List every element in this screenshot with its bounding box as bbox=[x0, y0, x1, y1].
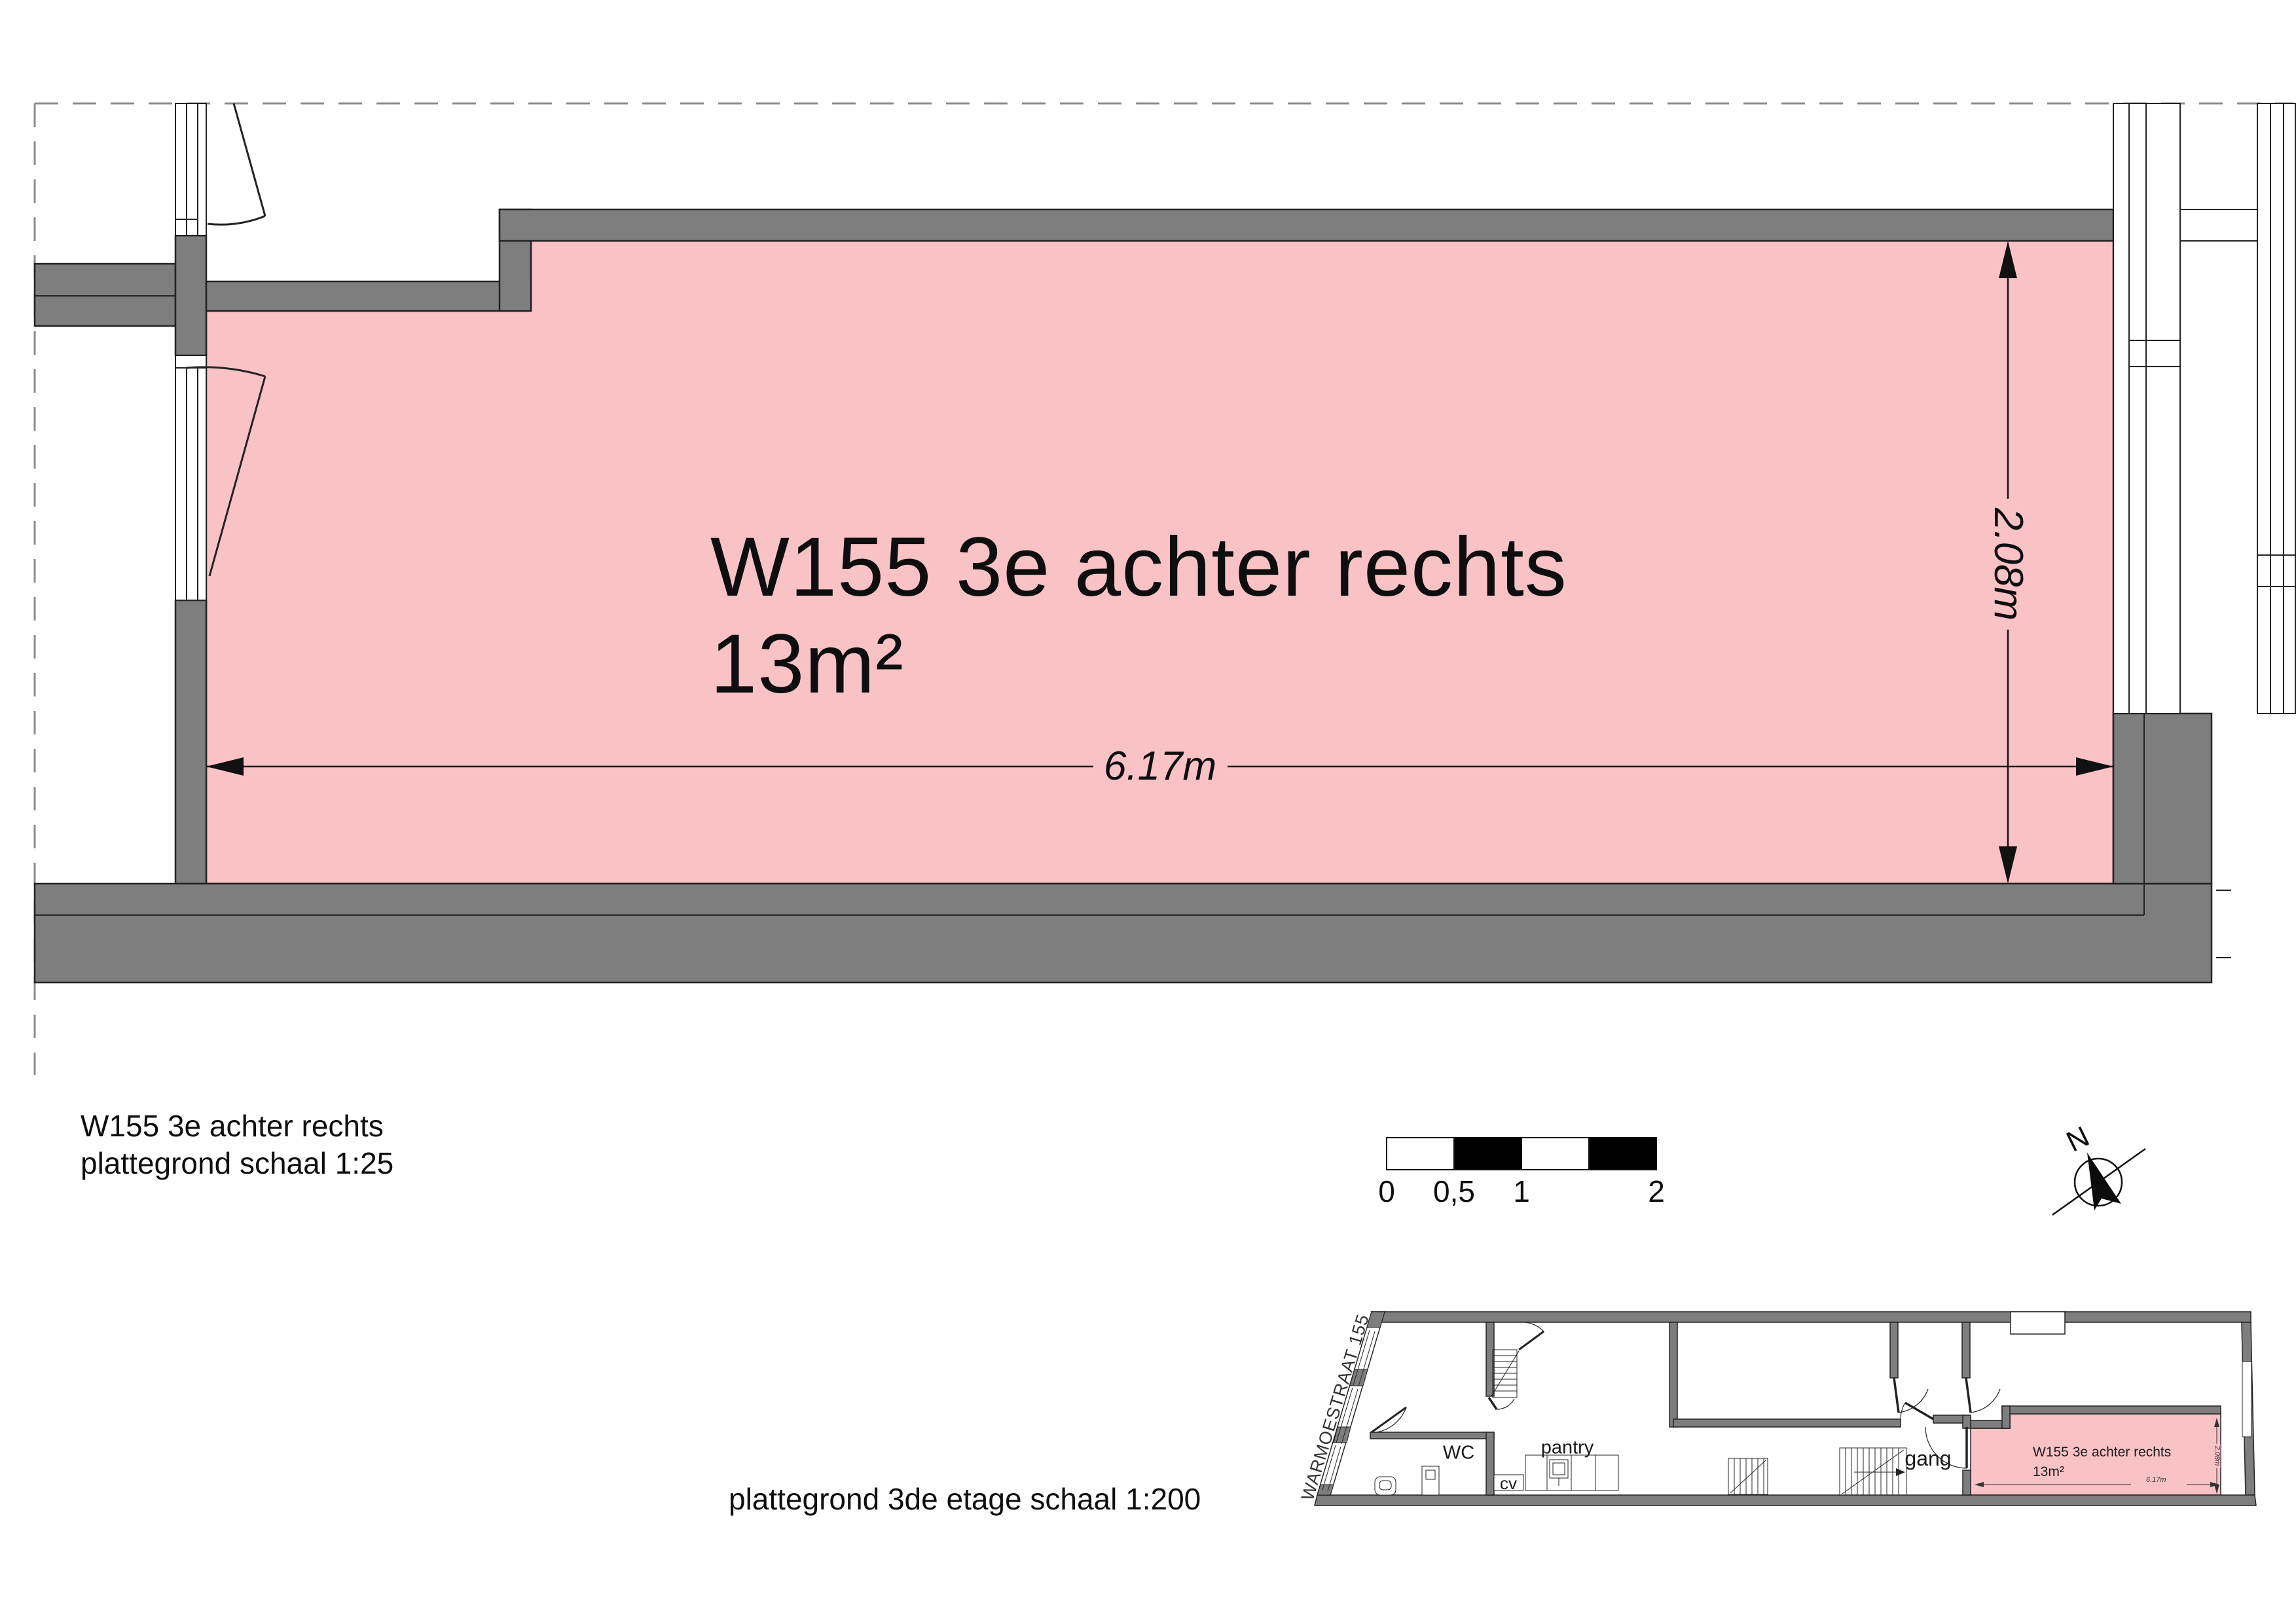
room-label-wc: WC bbox=[1443, 1444, 1474, 1463]
highlight-top-step bbox=[2002, 1406, 2010, 1428]
right-wall-continuation-lines bbox=[2180, 209, 2257, 241]
overview-highlight-size: 13m² bbox=[2033, 1465, 2064, 1479]
north-needle bbox=[2087, 1153, 2121, 1210]
width-dimension-label: 6.17m bbox=[1095, 746, 1226, 787]
overview-fixtures bbox=[1375, 1455, 1618, 1495]
room-divider-a bbox=[1669, 1322, 1677, 1427]
room-label-gang: gang bbox=[1904, 1448, 1951, 1469]
overview-plan bbox=[1315, 1312, 2256, 1506]
scale-bar bbox=[1387, 1138, 1656, 1170]
overview-caption: plattegrond 3de etage schaal 1:200 bbox=[729, 1481, 1201, 1518]
room-divider-b bbox=[1890, 1322, 1898, 1378]
ov-right-window bbox=[2242, 1362, 2251, 1437]
highlight-left-wall-top bbox=[1963, 1415, 1971, 1428]
stair-gang bbox=[1840, 1448, 1906, 1495]
pantry-counter bbox=[1525, 1455, 1618, 1490]
left-wall-lower bbox=[175, 600, 206, 884]
ov-bottom-wall bbox=[1315, 1495, 2256, 1506]
stair-left bbox=[1491, 1350, 1519, 1398]
right-window-frame-outer bbox=[2257, 103, 2295, 713]
left-wall-upper bbox=[175, 236, 206, 355]
room-label-cv: cv bbox=[1500, 1475, 1517, 1492]
overview-highlight-label: W155 3e achter rechts bbox=[2033, 1445, 2171, 1459]
flue-door bbox=[1489, 1398, 1514, 1409]
height-dimension-label: 2.08m bbox=[1988, 499, 2028, 630]
wc-top-wall bbox=[1370, 1432, 1494, 1439]
scale-label-05: 0,5 bbox=[1433, 1176, 1475, 1206]
wc-toilet bbox=[1375, 1477, 1396, 1495]
room-label-pantry: pantry bbox=[1541, 1439, 1594, 1458]
reference-ticks bbox=[2216, 890, 2231, 958]
right-window-frame-inner bbox=[2113, 103, 2180, 713]
room-area-label: W155 3e achter rechts bbox=[710, 519, 1567, 616]
overview-dim-height: 2.08m bbox=[2214, 1444, 2221, 1468]
top-wall-left-band bbox=[206, 281, 531, 311]
highlight-top-wall bbox=[2002, 1406, 2221, 1414]
left-window-frame bbox=[175, 103, 206, 236]
room-c-door bbox=[1966, 1378, 2000, 1413]
plan-caption-title: W155 3e achter rechts bbox=[81, 1108, 384, 1145]
right-wall-lower bbox=[2113, 713, 2212, 884]
overview-dim-width: 6.17m bbox=[2144, 1477, 2168, 1484]
door-leaf bbox=[234, 103, 265, 216]
ov-top-notch bbox=[2011, 1312, 2065, 1334]
corridor-wall-left bbox=[1673, 1419, 1901, 1427]
wc-door bbox=[1372, 1407, 1406, 1432]
door-arc bbox=[208, 216, 265, 225]
floorplan-sheet: W155 3e achter rechts 13m² 6.17m 2.08m W… bbox=[0, 0, 2296, 1624]
plan-caption-scale: plattegrond schaal 1:25 bbox=[81, 1145, 393, 1182]
highlight-left-wall-bottom bbox=[1963, 1470, 1971, 1495]
room-size-label: 13m² bbox=[710, 616, 904, 713]
stair-top-door bbox=[1519, 1322, 1544, 1350]
bottom-wall bbox=[35, 884, 2212, 983]
scale-bar-black-1 bbox=[1454, 1138, 1522, 1170]
scale-bar-black-2 bbox=[1589, 1138, 1656, 1170]
party-wall-stub bbox=[35, 264, 175, 326]
left-door-frame bbox=[175, 355, 206, 600]
top-wall-main bbox=[500, 209, 2113, 241]
scale-label-1: 1 bbox=[1513, 1176, 1530, 1206]
scale-label-0: 0 bbox=[1378, 1176, 1395, 1206]
neighbor-door-swing bbox=[208, 103, 265, 225]
stair-middle bbox=[1728, 1458, 1768, 1494]
scale-label-2: 2 bbox=[1648, 1176, 1665, 1206]
wc-sink-column bbox=[1422, 1466, 1439, 1495]
floorplan-drawing bbox=[0, 0, 2296, 1624]
room-divider-c bbox=[1962, 1322, 1970, 1378]
wc-right-wall bbox=[1486, 1432, 1494, 1495]
north-arrow-icon bbox=[2052, 1149, 2145, 1215]
ov-top-wall bbox=[1372, 1312, 2251, 1322]
